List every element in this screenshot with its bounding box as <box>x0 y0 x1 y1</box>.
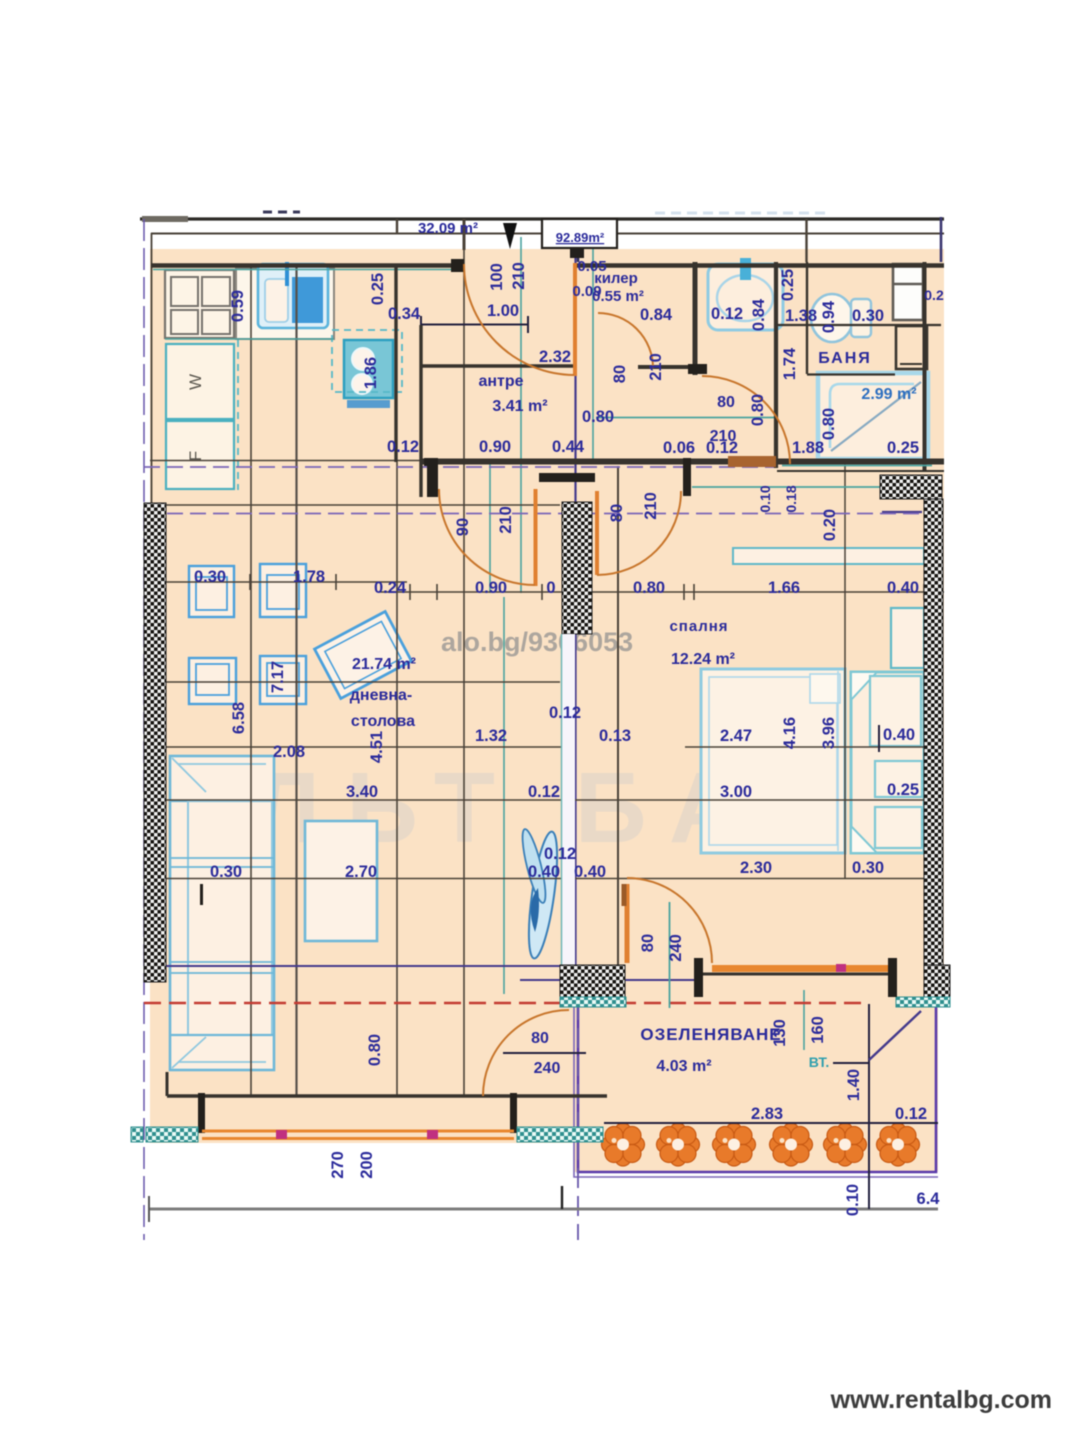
svg-text:2.32: 2.32 <box>539 348 571 366</box>
svg-text:80: 80 <box>717 394 735 411</box>
svg-text:210: 210 <box>710 428 737 445</box>
svg-text:2.70: 2.70 <box>345 863 377 881</box>
svg-text:210: 210 <box>497 506 515 534</box>
svg-text:дневна-: дневна- <box>350 687 412 704</box>
svg-text:0.90: 0.90 <box>475 579 507 597</box>
svg-text:0.13: 0.13 <box>599 727 631 745</box>
svg-text:270: 270 <box>329 1151 347 1179</box>
svg-text:210: 210 <box>510 262 528 290</box>
svg-text:2.08: 2.08 <box>273 743 305 761</box>
svg-text:0.25: 0.25 <box>887 439 919 457</box>
svg-text:F: F <box>186 451 205 461</box>
svg-text:210: 210 <box>642 492 660 520</box>
svg-text:3.00: 3.00 <box>720 783 752 801</box>
svg-text:1.38: 1.38 <box>785 307 817 325</box>
svg-text:0.25: 0.25 <box>369 273 387 305</box>
svg-text:0: 0 <box>546 579 555 597</box>
svg-text:4.16: 4.16 <box>781 717 799 749</box>
svg-text:0.12: 0.12 <box>544 845 576 863</box>
svg-text:0.25: 0.25 <box>887 781 919 799</box>
svg-text:ВТ.: ВТ. <box>809 1054 829 1070</box>
svg-text:0.30: 0.30 <box>194 568 226 586</box>
svg-text:0.84: 0.84 <box>750 298 768 331</box>
svg-text:alo.bg/9366053: alo.bg/9366053 <box>441 627 633 657</box>
svg-text:2.99 m²: 2.99 m² <box>861 386 916 403</box>
svg-text:1.00: 1.00 <box>487 302 519 320</box>
svg-text:0.30: 0.30 <box>852 859 884 877</box>
svg-text:3.40: 3.40 <box>346 783 378 801</box>
svg-text:3.41 m²: 3.41 m² <box>492 398 547 415</box>
svg-text:7.17: 7.17 <box>269 661 287 693</box>
svg-text:0.12: 0.12 <box>711 305 743 323</box>
svg-text:12.24 m²: 12.24 m² <box>671 651 735 668</box>
svg-text:130: 130 <box>771 1019 789 1047</box>
svg-text:80: 80 <box>611 365 629 383</box>
svg-text:спалня: спалня <box>669 618 728 635</box>
svg-text:200: 200 <box>358 1151 376 1179</box>
svg-text:1.88: 1.88 <box>792 439 824 457</box>
svg-text:0.84: 0.84 <box>640 306 673 324</box>
svg-text:1.78: 1.78 <box>293 568 325 586</box>
svg-text:0.2: 0.2 <box>924 287 944 303</box>
svg-text:0.12: 0.12 <box>528 783 560 801</box>
svg-text:210: 210 <box>647 353 665 381</box>
svg-text:0.10: 0.10 <box>844 1184 862 1216</box>
svg-text:0.40: 0.40 <box>887 579 919 597</box>
svg-text:6.4: 6.4 <box>917 1190 941 1208</box>
svg-text:0.80: 0.80 <box>749 394 767 426</box>
svg-text:21.74 m²: 21.74 m² <box>352 656 416 673</box>
svg-text:240: 240 <box>534 1060 561 1077</box>
svg-text:2.47: 2.47 <box>720 727 752 745</box>
svg-text:0.44: 0.44 <box>552 438 585 456</box>
svg-text:0.25: 0.25 <box>779 269 797 301</box>
svg-text:0.12: 0.12 <box>387 438 419 456</box>
svg-text:0.10: 0.10 <box>757 485 773 512</box>
svg-text:0.24: 0.24 <box>374 579 407 597</box>
svg-text:0.80: 0.80 <box>366 1034 384 1066</box>
svg-text:0.06: 0.06 <box>663 439 695 457</box>
svg-text:80: 80 <box>639 934 657 952</box>
svg-text:100: 100 <box>488 263 506 291</box>
svg-text:www.rentalbg.com: www.rentalbg.com <box>830 1386 1052 1414</box>
svg-text:1.32: 1.32 <box>475 727 507 745</box>
svg-text:0.05: 0.05 <box>577 258 606 275</box>
svg-text:6.58: 6.58 <box>230 702 248 734</box>
svg-text:0.18: 0.18 <box>783 485 799 512</box>
svg-text:32.09 m²: 32.09 m² <box>418 220 478 237</box>
svg-text:0.20: 0.20 <box>821 509 839 541</box>
svg-text:0.59: 0.59 <box>229 290 247 322</box>
svg-text:0.94: 0.94 <box>820 300 838 333</box>
svg-text:0.09: 0.09 <box>572 283 601 300</box>
svg-text:0.30: 0.30 <box>210 863 242 881</box>
svg-text:0.30: 0.30 <box>852 307 884 325</box>
svg-text:0.80: 0.80 <box>633 579 665 597</box>
svg-text:0.34: 0.34 <box>388 305 421 323</box>
svg-text:2.30: 2.30 <box>740 859 772 877</box>
svg-text:1.74: 1.74 <box>781 347 799 380</box>
svg-text:92.89m²: 92.89m² <box>556 230 605 245</box>
svg-text:240: 240 <box>667 934 685 962</box>
svg-text:80: 80 <box>608 504 626 522</box>
svg-text:антре: антре <box>478 373 523 390</box>
svg-text:0.12: 0.12 <box>549 704 581 722</box>
svg-text:2.83: 2.83 <box>751 1105 783 1123</box>
svg-text:0.12: 0.12 <box>895 1105 927 1123</box>
svg-text:столова: столова <box>351 713 415 730</box>
svg-text:3.96: 3.96 <box>820 717 838 749</box>
svg-text:0.40: 0.40 <box>528 863 560 881</box>
svg-text:0.80: 0.80 <box>820 408 838 440</box>
svg-text:0.90: 0.90 <box>479 438 511 456</box>
svg-text:1.66: 1.66 <box>768 579 800 597</box>
svg-text:1.40: 1.40 <box>845 1069 863 1101</box>
svg-text:4.51: 4.51 <box>368 731 386 763</box>
svg-text:БАНЯ: БАНЯ <box>818 350 872 367</box>
svg-text:90: 90 <box>454 518 472 536</box>
svg-text:80: 80 <box>531 1030 549 1047</box>
svg-text:0.40: 0.40 <box>883 726 915 744</box>
svg-text:0.40: 0.40 <box>574 863 606 881</box>
svg-text:160: 160 <box>809 1016 827 1044</box>
svg-text:W: W <box>186 374 205 390</box>
svg-text:ОЗЕЛЕНЯВАНЕ: ОЗЕЛЕНЯВАНЕ <box>640 1025 781 1044</box>
svg-text:1.86: 1.86 <box>362 357 380 389</box>
svg-text:4.03 m²: 4.03 m² <box>656 1058 711 1075</box>
svg-text:0.80: 0.80 <box>582 408 614 426</box>
